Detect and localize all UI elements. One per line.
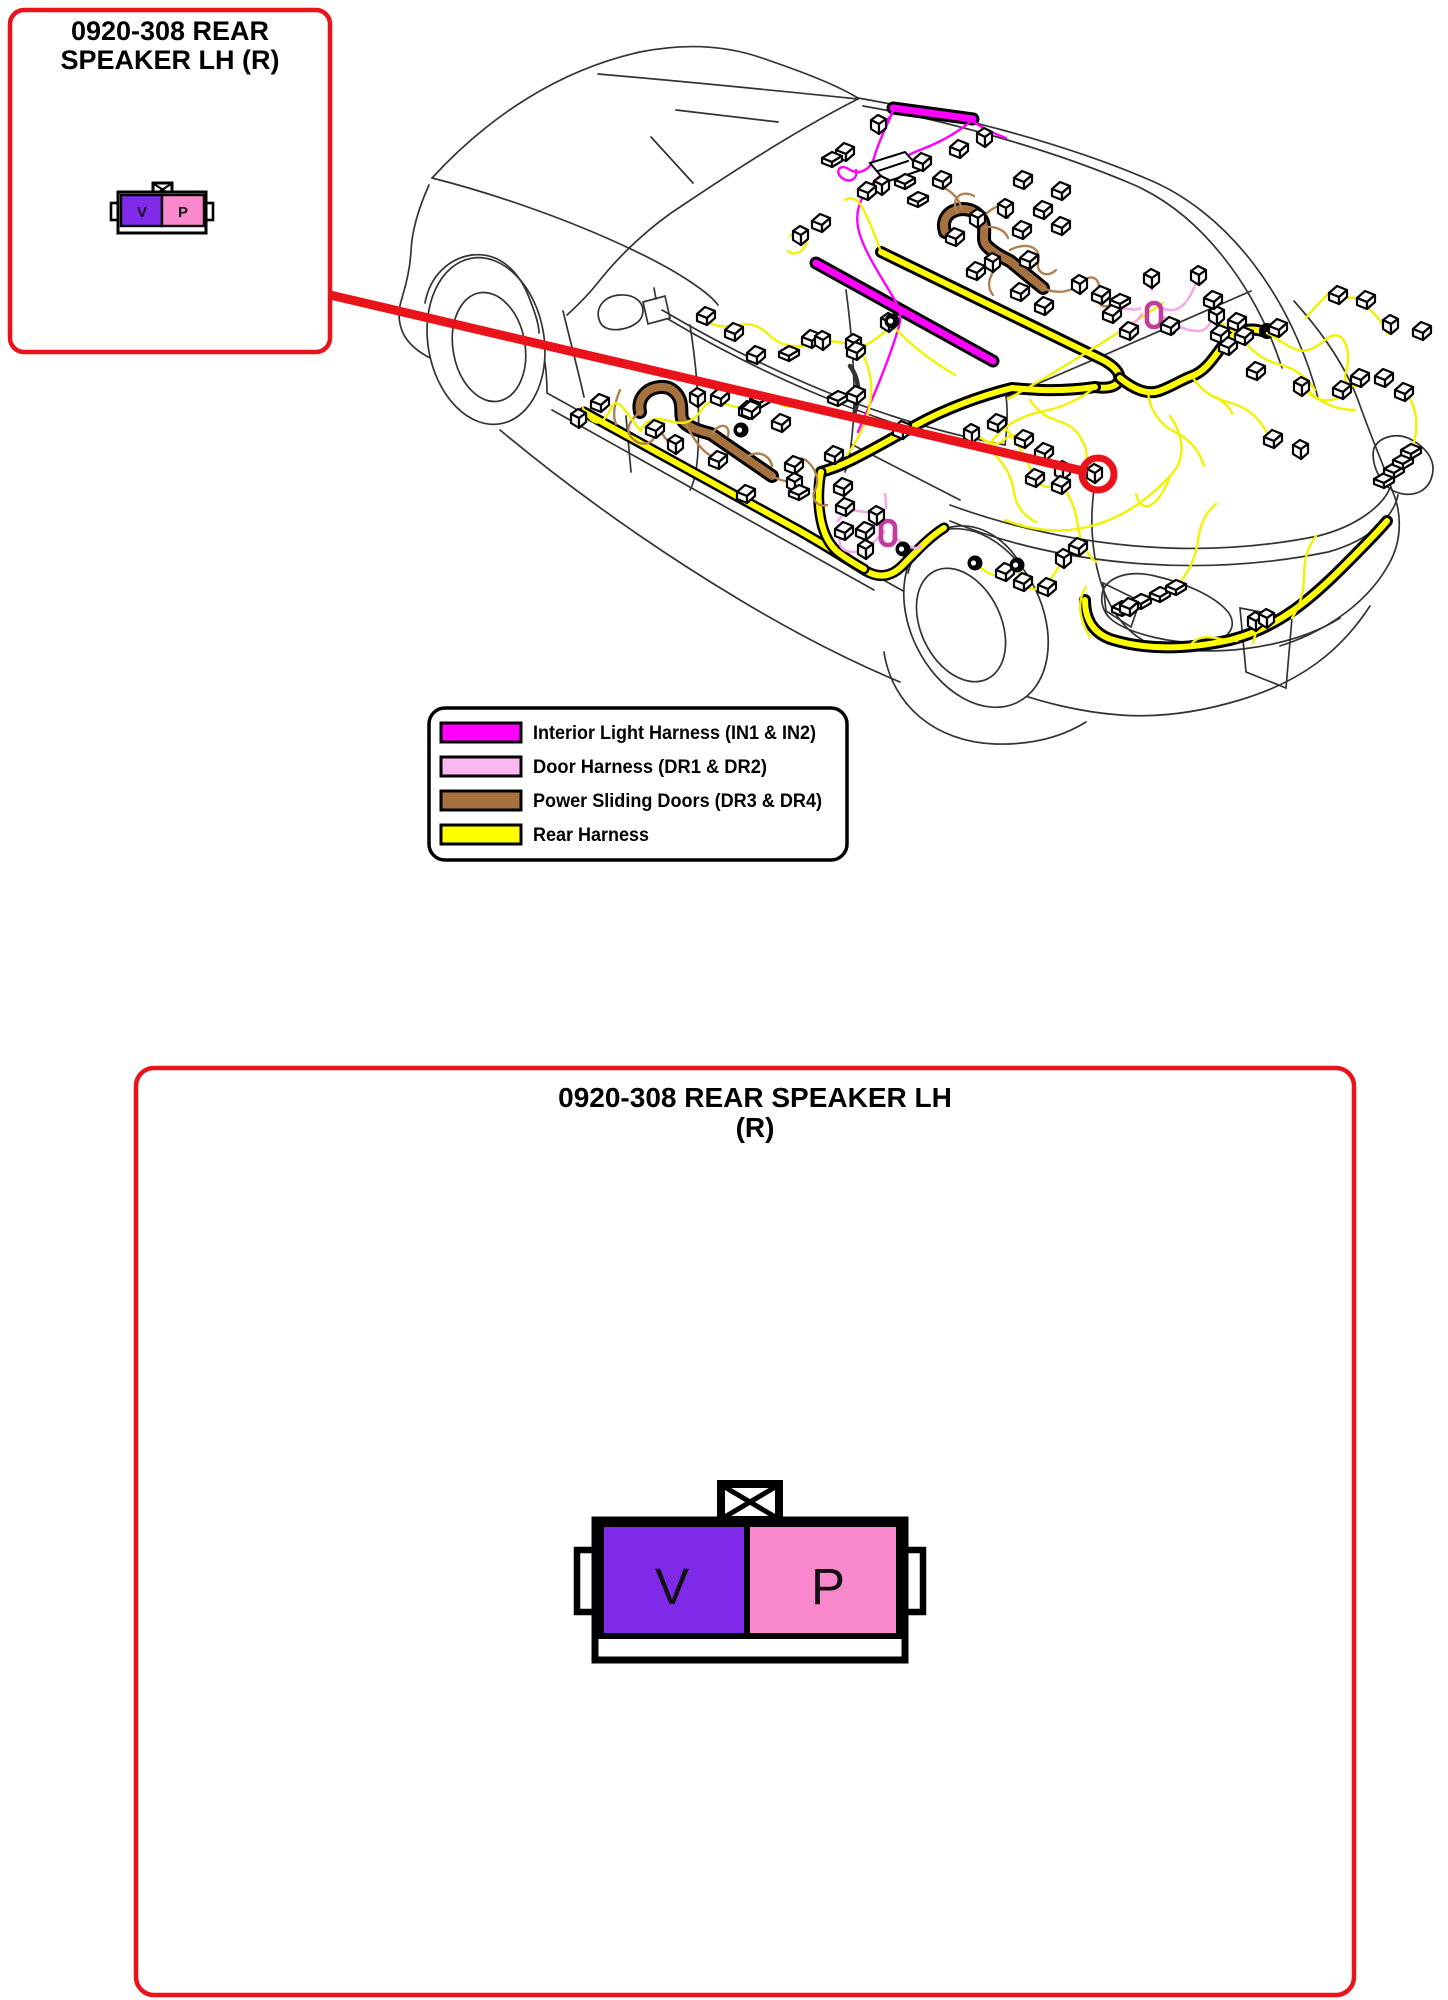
svg-text:Door Harness (DR1 & DR2): Door Harness (DR1 & DR2) [533,757,767,778]
svg-text:Rear Harness: Rear Harness [533,825,649,846]
svg-text:(R): (R) [736,1112,775,1143]
svg-text:0920-308 REAR: 0920-308 REAR [71,16,269,46]
svg-text:P: P [178,204,188,221]
svg-text:V: V [137,204,147,221]
svg-text:SPEAKER LH (R): SPEAKER LH (R) [60,45,279,75]
svg-text:P: P [811,1558,845,1615]
svg-text:Interior Light Harness (IN1 &: Interior Light Harness (IN1 & IN2) [533,723,816,744]
svg-text:V: V [655,1558,689,1615]
svg-text:Power Sliding Doors (DR3 & DR4: Power Sliding Doors (DR3 & DR4) [533,791,822,812]
svg-text:0920-308 REAR SPEAKER LH: 0920-308 REAR SPEAKER LH [558,1082,952,1113]
